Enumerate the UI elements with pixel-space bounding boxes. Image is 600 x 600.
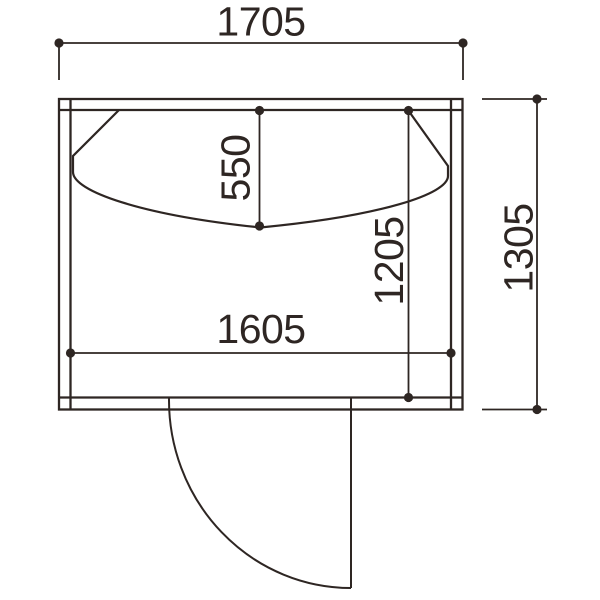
dimension-inner-width: 1605	[66, 306, 456, 358]
floor-plan-canvas: 1705 1305 1605 1205	[0, 0, 600, 600]
dim-endpoint-dot	[404, 106, 413, 115]
dimension-inner-height: 1205	[366, 106, 413, 402]
dimension-label-counter-depth: 550	[213, 135, 259, 202]
door-swing-arc	[169, 398, 351, 588]
dimension-label-inner-height: 1205	[366, 216, 412, 305]
dim-endpoint-dot	[532, 94, 541, 103]
dimension-label-outer-height: 1305	[496, 203, 542, 292]
dim-endpoint-dot	[532, 405, 541, 414]
dimension-outer-height: 1305	[482, 94, 547, 414]
dimension-counter-depth: 550	[213, 106, 265, 231]
dim-endpoint-dot	[66, 348, 75, 357]
dimension-outer-width: 1705	[54, 0, 467, 80]
dim-endpoint-dot	[404, 393, 413, 402]
dim-endpoint-dot	[446, 348, 455, 357]
counter-front-edge	[73, 110, 448, 228]
dimension-label-outer-width: 1705	[216, 0, 305, 45]
door	[169, 398, 351, 589]
dim-endpoint-dot	[255, 221, 264, 230]
dim-endpoint-dot	[255, 106, 264, 115]
dim-endpoint-dot	[54, 38, 63, 47]
dimension-label-inner-width: 1605	[216, 306, 305, 352]
dim-endpoint-dot	[458, 38, 467, 47]
floor-plan-drawing: 1705 1305 1605 1205	[0, 0, 600, 600]
